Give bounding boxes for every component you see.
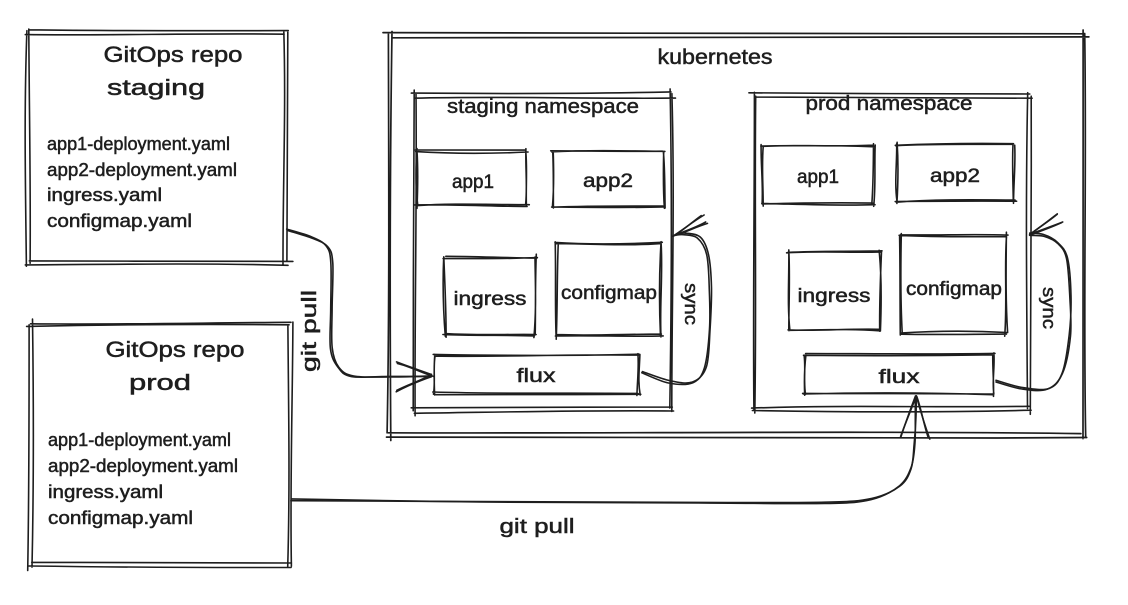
- svg-text:git pull: git pull: [299, 290, 321, 372]
- svg-text:staging namespace: staging namespace: [447, 96, 639, 118]
- svg-text:ingress.yaml: ingress.yaml: [48, 482, 163, 502]
- svg-text:configmap.yaml: configmap.yaml: [47, 211, 192, 231]
- svg-text:sync: sync: [1039, 287, 1059, 329]
- svg-text:prod namespace: prod namespace: [806, 93, 973, 115]
- svg-text:app1: app1: [797, 167, 839, 188]
- svg-text:configmap.yaml: configmap.yaml: [48, 508, 193, 528]
- svg-text:git pull: git pull: [500, 516, 575, 538]
- svg-text:app2-deployment.yaml: app2-deployment.yaml: [48, 456, 238, 476]
- svg-text:prod: prod: [129, 370, 191, 395]
- svg-text:app2: app2: [583, 171, 633, 192]
- svg-text:ingress: ingress: [454, 289, 527, 310]
- svg-text:flux: flux: [879, 367, 921, 388]
- svg-text:GitOps repo: GitOps repo: [104, 42, 243, 67]
- svg-text:configmap: configmap: [561, 283, 657, 304]
- svg-text:app1-deployment.yaml: app1-deployment.yaml: [47, 134, 230, 154]
- svg-text:ingress: ingress: [798, 286, 871, 307]
- svg-text:app1-deployment.yaml: app1-deployment.yaml: [48, 430, 231, 450]
- svg-text:configmap: configmap: [906, 279, 1002, 300]
- svg-text:app2-deployment.yaml: app2-deployment.yaml: [47, 160, 237, 180]
- svg-text:app1: app1: [452, 172, 494, 193]
- svg-text:GitOps repo: GitOps repo: [106, 337, 245, 362]
- svg-text:ingress.yaml: ingress.yaml: [47, 185, 162, 205]
- svg-text:flux: flux: [517, 366, 557, 387]
- svg-text:app2: app2: [930, 166, 980, 187]
- svg-text:sync: sync: [681, 283, 701, 325]
- svg-text:staging: staging: [107, 75, 205, 100]
- svg-text:kubernetes: kubernetes: [658, 46, 773, 69]
